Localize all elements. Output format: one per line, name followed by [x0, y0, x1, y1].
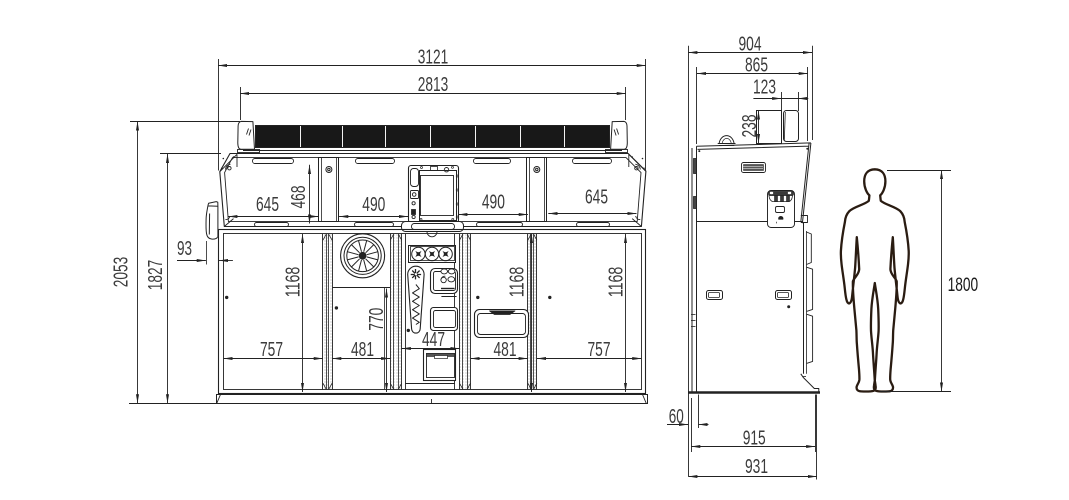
svg-text:2053: 2053 — [110, 257, 133, 288]
svg-text:904: 904 — [739, 33, 762, 56]
svg-text:123: 123 — [753, 76, 776, 99]
svg-text:60: 60 — [669, 405, 684, 428]
svg-text:645: 645 — [256, 193, 279, 216]
svg-text:490: 490 — [482, 191, 505, 214]
svg-text:481: 481 — [494, 338, 517, 361]
svg-text:757: 757 — [588, 338, 611, 361]
svg-text:865: 865 — [745, 54, 768, 77]
svg-text:490: 490 — [362, 193, 385, 216]
svg-text:1827: 1827 — [144, 260, 167, 291]
svg-text:1800: 1800 — [948, 275, 979, 296]
svg-text:3121: 3121 — [418, 45, 449, 68]
svg-text:770: 770 — [365, 308, 388, 331]
svg-text:931: 931 — [745, 455, 768, 478]
svg-text:757: 757 — [260, 338, 283, 361]
svg-text:645: 645 — [585, 186, 608, 209]
svg-text:447: 447 — [422, 328, 445, 351]
svg-text:481: 481 — [351, 338, 374, 361]
svg-text:468: 468 — [287, 186, 310, 209]
svg-text:93: 93 — [177, 237, 192, 260]
svg-text:1168: 1168 — [282, 267, 305, 298]
svg-text:2813: 2813 — [418, 73, 449, 96]
svg-text:1168: 1168 — [605, 267, 628, 298]
svg-text:238: 238 — [738, 115, 761, 138]
svg-text:915: 915 — [743, 426, 766, 449]
svg-text:1168: 1168 — [506, 267, 529, 298]
